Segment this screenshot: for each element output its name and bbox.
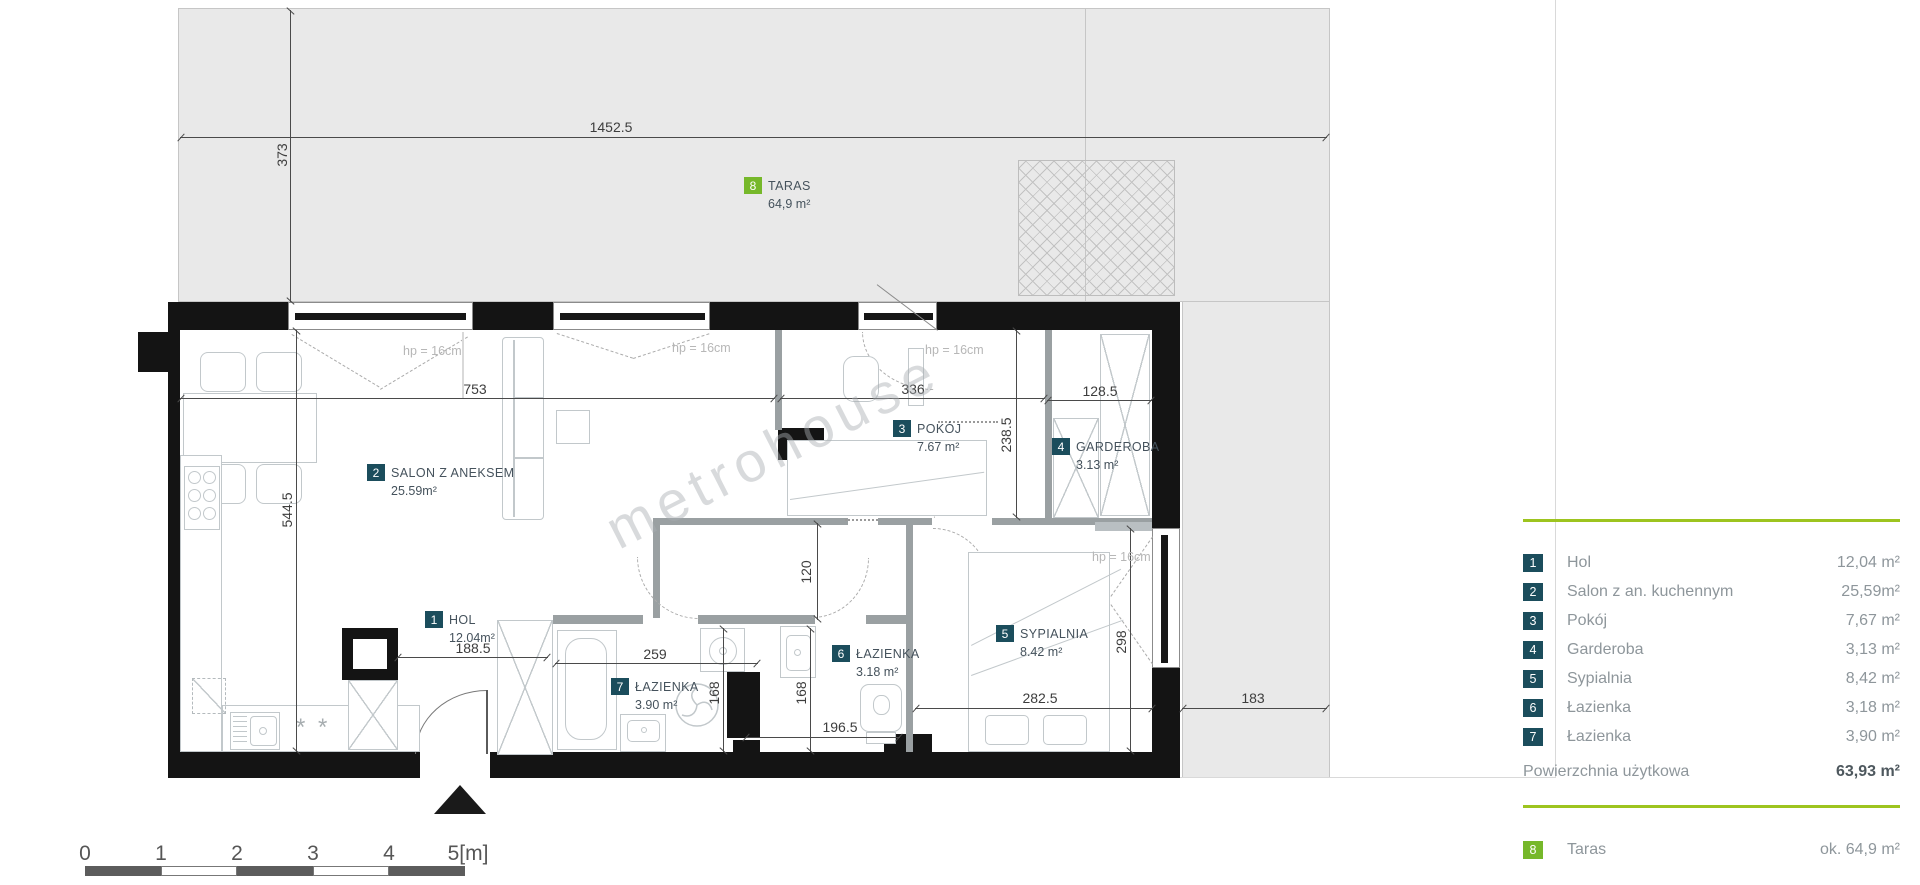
- dim-label-373: 373: [274, 143, 290, 166]
- legend-number-badge: 1: [1523, 554, 1543, 572]
- legend-number-badge: 7: [1523, 728, 1543, 746]
- dim-line-168a: [723, 628, 724, 752]
- scale-segment: [389, 866, 465, 876]
- room-number-badge: 6: [832, 645, 850, 662]
- scale-number: 3: [307, 842, 319, 866]
- dim-line-753: [180, 398, 775, 399]
- dim-label-1452: 1452.5: [590, 119, 633, 135]
- wall-top-segment-1: [168, 302, 288, 330]
- room-number-badge: 8: [744, 177, 762, 194]
- room-number-badge: 1: [425, 611, 443, 628]
- pokoj-bed-line: [790, 472, 984, 500]
- iwall-bath7-top-1: [553, 615, 643, 624]
- chair: [200, 352, 246, 392]
- room-area: 3.18 m²: [856, 665, 920, 679]
- dim-label-259: 259: [643, 646, 666, 662]
- iwall-pokoj-garderoba: [1045, 330, 1052, 520]
- legend-room-area: 3,18 m²: [1846, 699, 1900, 717]
- legend-number-badge: 6: [1523, 699, 1543, 717]
- window-salon-1: [288, 302, 473, 330]
- sliding-front-dotted: [845, 519, 878, 521]
- bath7-sink-drain: [641, 727, 647, 733]
- legend-room-area: 12,04 m²: [1837, 554, 1900, 572]
- dim-line-188: [397, 657, 548, 658]
- bath7-door-arc: [637, 557, 699, 619]
- room-number-badge: 4: [1052, 438, 1070, 455]
- legend-panel: 1 Hol 12,04 m² 2 Salon z an. kuchennym 2…: [1523, 519, 1900, 864]
- legend-row-hol: 1 Hol 12,04 m²: [1523, 548, 1900, 577]
- side-table: [556, 410, 590, 444]
- legend-number-badge: 5: [1523, 670, 1543, 688]
- legend-divider-top: [1523, 519, 1900, 522]
- dim-line-259: [555, 663, 758, 664]
- legend-total-value: 63,93 m²: [1836, 763, 1900, 781]
- garderoba-wardrobe: [1100, 334, 1150, 516]
- legend-row-taras: 8 Taras ok. 64,9 m²: [1523, 835, 1900, 864]
- wall-top-segment-3: [710, 302, 858, 330]
- room-number-badge: 7: [611, 678, 629, 695]
- dim-label-298: 298: [1113, 630, 1129, 653]
- sink-drainer: [233, 716, 247, 746]
- legend-row-garderoba: 4 Garderoba 3,13 m²: [1523, 635, 1900, 664]
- wall-bottom-segment-2: [490, 752, 1180, 778]
- iwall-bath6-sypialnia: [906, 525, 913, 752]
- legend-total-label: Powierzchnia użytkowa: [1523, 763, 1689, 781]
- iwall-bath6-top-1: [760, 615, 815, 624]
- hob-burner: [203, 489, 216, 502]
- hob-burner: [188, 471, 201, 484]
- garderoba-shelf: [1095, 522, 1152, 531]
- room-label-salon: 2 SALON Z ANEKSEM 25.59m²: [367, 464, 514, 498]
- window-height-label: hp = 16cm: [1092, 550, 1151, 564]
- legend-row-salon: 2 Salon z an. kuchennym 25,59m²: [1523, 577, 1900, 606]
- dim-label-168a: 168: [706, 681, 722, 704]
- sink-drain: [259, 727, 267, 735]
- room-area: 64,9 m²: [768, 197, 811, 211]
- dim-line-128: [1047, 400, 1152, 401]
- legend-number-badge: 4: [1523, 641, 1543, 659]
- legend-divider-bottom: [1523, 805, 1900, 808]
- dim-label-282: 282.5: [1022, 690, 1057, 706]
- scale-number: 1: [155, 842, 167, 866]
- toilet: [860, 684, 902, 732]
- legend-total-row: Powierzchnia użytkowa 63,93 m²: [1523, 757, 1900, 787]
- legend-row-lazienka6: 6 Łazienka 3,18 m²: [1523, 693, 1900, 722]
- toilet-base: [866, 732, 896, 744]
- window-pokoj: [858, 302, 937, 330]
- legend-room-name: Salon z an. kuchennym: [1567, 583, 1733, 601]
- toilet-bowl: [873, 695, 890, 715]
- room-area: 25.59m²: [391, 484, 514, 498]
- iwall-bath7-top-2: [698, 615, 760, 624]
- room-number-badge: 5: [996, 625, 1014, 642]
- shaft: [342, 628, 398, 680]
- bath6-sink-drain: [794, 649, 801, 656]
- scale-number: 5[m]: [448, 842, 489, 866]
- terrace-right-strip: [1182, 302, 1330, 778]
- room-label-lazienka6: 6 ŁAZIENKA 3.18 m²: [832, 645, 920, 679]
- iwall-corridor-2: [878, 518, 932, 525]
- dim-line-1452: [180, 137, 1327, 138]
- wall-right-lower: [1152, 668, 1180, 778]
- legend-room-name: Pokój: [1567, 612, 1607, 630]
- scale-number: 4: [383, 842, 395, 866]
- legend-room-area: 3,13 m²: [1846, 641, 1900, 659]
- legend-room-name: Łazienka: [1567, 699, 1631, 717]
- legend-room-area: 3,90 m²: [1846, 728, 1900, 746]
- window-height-label: hp = 16cm: [672, 341, 731, 355]
- dim-line-196: [745, 737, 900, 738]
- legend-room-name: Garderoba: [1567, 641, 1644, 659]
- legend-room-area: 25,59m²: [1841, 583, 1900, 601]
- room-label-lazienka7: 7 ŁAZIENKA 3.90 m²: [611, 678, 699, 712]
- hob-burner: [203, 471, 216, 484]
- room-name: SYPIALNIA: [1020, 627, 1088, 641]
- dim-line-373: [290, 10, 291, 302]
- hob-burner: [188, 489, 201, 502]
- room-name: SALON Z ANEKSEM: [391, 466, 514, 480]
- legend-room-area: ok. 64,9 m²: [1820, 841, 1900, 859]
- dim-line-183: [1182, 708, 1327, 709]
- pillow: [1043, 715, 1087, 745]
- hob: [184, 466, 220, 530]
- dim-line-282: [915, 708, 1153, 709]
- scale-segment: [237, 866, 313, 876]
- wall-left: [168, 330, 180, 778]
- legend-rows: 1 Hol 12,04 m² 2 Salon z an. kuchennym 2…: [1523, 548, 1900, 751]
- hob-burner: [203, 507, 216, 520]
- entrance-door-hinge: [408, 754, 420, 770]
- legend-room-name: Taras: [1567, 841, 1606, 859]
- bath6-door-arc: [812, 558, 869, 618]
- scale-segment: [85, 866, 161, 876]
- dim-label-168b: 168: [793, 681, 809, 704]
- room-name: ŁAZIENKA: [635, 680, 699, 694]
- legend-row-sypialnia: 5 Sypialnia 8,42 m²: [1523, 664, 1900, 693]
- dim-line-120: [817, 523, 818, 620]
- dim-label-128: 128.5: [1082, 383, 1117, 399]
- entrance-door-arc: [415, 690, 487, 754]
- sofa-cushion-line: [513, 457, 543, 459]
- scale-segment: [313, 866, 389, 876]
- room-name: ŁAZIENKA: [856, 647, 920, 661]
- kitchen-sink: [230, 712, 280, 750]
- room-label-hol: 1 HOL 12.04m²: [425, 611, 495, 645]
- window-glazing-bar: [295, 313, 466, 320]
- room-name: HOL: [449, 613, 476, 627]
- wall-left-outdent: [138, 332, 170, 372]
- legend-room-name: Łazienka: [1567, 728, 1631, 746]
- entrance-arrow-icon: [434, 785, 486, 814]
- window-glazing-bar: [560, 313, 705, 320]
- dim-label-544: 544.5: [279, 492, 295, 527]
- legend-room-name: Sypialnia: [1567, 670, 1632, 688]
- window-height-label: hp = 16cm: [403, 344, 462, 358]
- legend-room-area: 7,67 m²: [1846, 612, 1900, 630]
- wall-right-upper: [1152, 302, 1180, 528]
- legend-room-area: 8,42 m²: [1846, 670, 1900, 688]
- dim-label-753: 753: [463, 381, 486, 397]
- legend-number-badge: 3: [1523, 612, 1543, 630]
- room-area: 12.04m²: [449, 631, 495, 645]
- hob-symbol: * *: [296, 714, 330, 742]
- scale-number: 0: [79, 842, 91, 866]
- wall-bottom-segment-1: [168, 752, 420, 778]
- legend-number-badge: 8: [1523, 841, 1543, 859]
- room-number-badge: 2: [367, 464, 385, 481]
- dim-label-238: 238.5: [998, 417, 1014, 452]
- room-area: 7.67 m²: [917, 440, 961, 454]
- room-area: 8.42 m²: [1020, 645, 1088, 659]
- room-area: 3.90 m²: [635, 698, 699, 712]
- dim-line-168b: [810, 628, 811, 752]
- pillow: [985, 715, 1029, 745]
- window-fold-line: [557, 333, 633, 359]
- scale-number: 2: [231, 842, 243, 866]
- fridge: [192, 678, 226, 714]
- kitchen-tall-cabinet: [348, 680, 398, 750]
- floor-plan-canvas: * * 14: [0, 0, 1920, 885]
- scale-segment: [161, 866, 237, 876]
- hob-burner: [188, 507, 201, 520]
- legend-row-pokoj: 3 Pokój 7,67 m²: [1523, 606, 1900, 635]
- window-fold-line: [291, 334, 379, 387]
- dim-label-196: 196.5: [822, 719, 857, 735]
- bathtub: [557, 630, 617, 750]
- legend-room-name: Hol: [1567, 554, 1591, 572]
- room-label-pokoj: 3 POKÓJ 7.67 m²: [893, 420, 961, 454]
- room-name: POKÓJ: [917, 422, 961, 436]
- entrance-door-leaf: [486, 690, 488, 754]
- bathtub-inner: [565, 638, 607, 740]
- window-glazing-bar: [1161, 535, 1168, 663]
- pillar-bathroom: [727, 672, 760, 738]
- dim-label-120: 120: [798, 560, 814, 583]
- room-area: 3.13 m²: [1076, 458, 1159, 472]
- room-name: GARDEROBA: [1076, 440, 1159, 454]
- legend-row-lazienka7: 7 Łazienka 3,90 m²: [1523, 722, 1900, 751]
- legend-number-badge: 2: [1523, 583, 1543, 601]
- window-sypialnia: [1152, 528, 1180, 668]
- room-label-garderoba: 4 GARDEROBA 3.13 m²: [1052, 438, 1159, 472]
- room-label-taras: 8 TARAS 64,9 m²: [744, 177, 811, 211]
- bath7-sink: [620, 714, 666, 752]
- pillar-bathroom-foot: [733, 740, 760, 754]
- dim-line-544: [296, 330, 297, 752]
- room-label-sypialnia: 5 SYPIALNIA 8.42 m²: [996, 625, 1088, 659]
- window-salon-2: [553, 302, 710, 330]
- dim-label-183: 183: [1241, 690, 1264, 706]
- room-name: TARAS: [768, 179, 811, 193]
- wall-top-segment-2: [473, 302, 553, 330]
- hol-wardrobe: [497, 620, 553, 755]
